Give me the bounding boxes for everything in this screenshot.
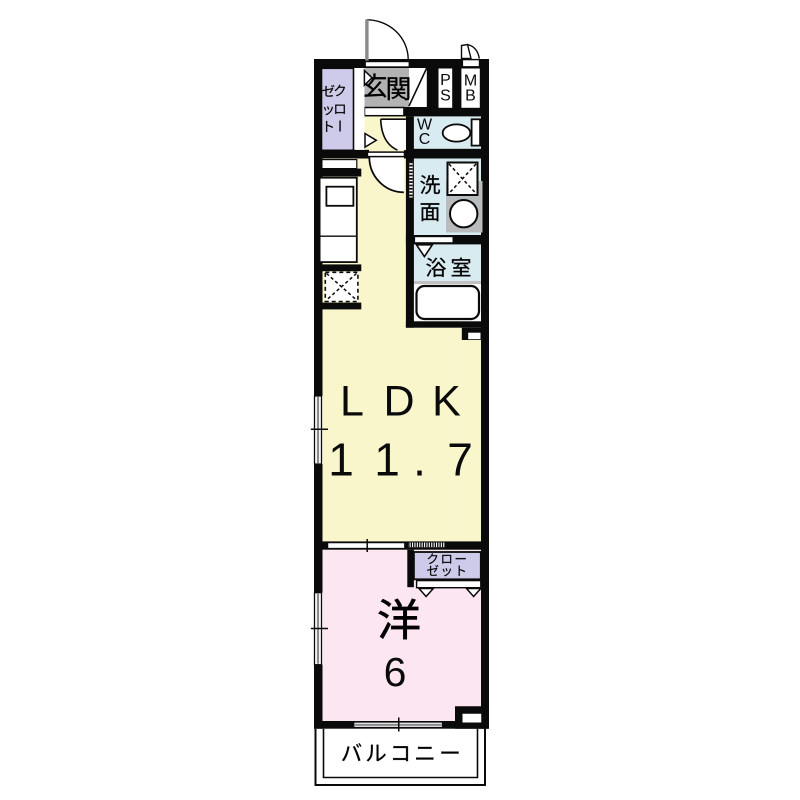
svg-text:6: 6 xyxy=(384,649,407,695)
svg-text:S: S xyxy=(440,87,451,104)
svg-text:1: 1 xyxy=(374,434,400,486)
svg-text:.: . xyxy=(413,434,426,486)
svg-text:1: 1 xyxy=(328,434,354,486)
svg-text:K: K xyxy=(432,378,461,426)
svg-text:D: D xyxy=(383,378,414,426)
svg-text:C: C xyxy=(419,131,431,148)
svg-text:L: L xyxy=(340,378,364,426)
svg-text:7: 7 xyxy=(447,434,473,486)
svg-text:B: B xyxy=(465,87,476,104)
